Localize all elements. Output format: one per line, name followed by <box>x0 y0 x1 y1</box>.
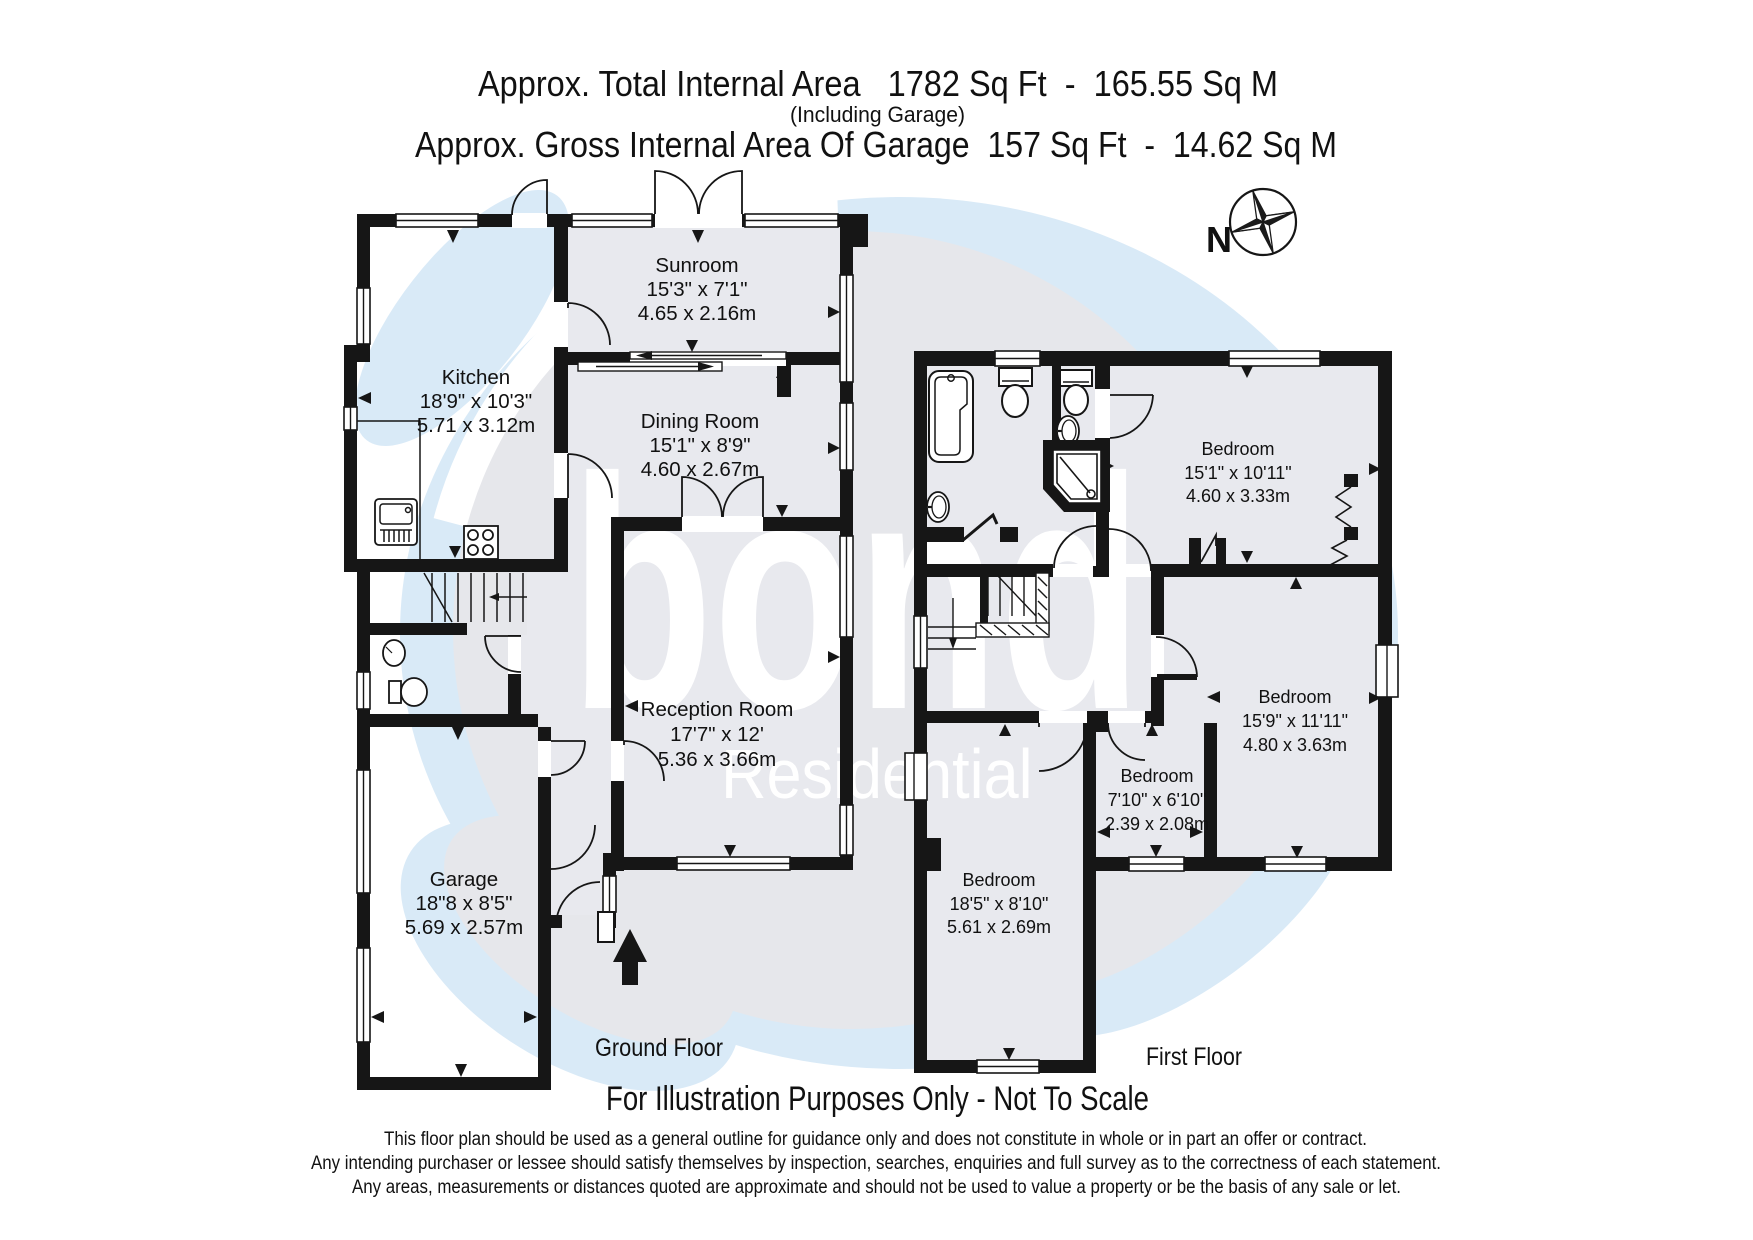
svg-text:Approx. Total Internal Area: Approx. Total Internal Area 1782 Sq Ft -… <box>478 63 1278 104</box>
svg-text:15'3" x 7'1": 15'3" x 7'1" <box>646 278 747 301</box>
svg-text:For Illustration Purposes Only: For Illustration Purposes Only - Not To … <box>606 1080 1149 1118</box>
svg-text:5.36 x 3.66m: 5.36 x 3.66m <box>658 748 777 771</box>
svg-text:First Floor: First Floor <box>1146 1043 1242 1071</box>
svg-text:18'9" x 10'3": 18'9" x 10'3" <box>420 390 532 413</box>
svg-text:4.60 x 2.67m: 4.60 x 2.67m <box>641 458 760 481</box>
svg-text:2.39 x 2.08m: 2.39 x 2.08m <box>1105 814 1209 834</box>
svg-text:Bedroom: Bedroom <box>1201 439 1274 459</box>
svg-text:Sunroom: Sunroom <box>655 254 738 277</box>
svg-text:18"8 x 8'5": 18"8 x 8'5" <box>415 892 512 915</box>
svg-text:15'1" x 8'9": 15'1" x 8'9" <box>649 434 750 457</box>
svg-text:4.80 x 3.63m: 4.80 x 3.63m <box>1243 735 1347 755</box>
svg-text:18'5" x 8'10": 18'5" x 8'10" <box>950 894 1049 914</box>
svg-text:Ground Floor: Ground Floor <box>595 1034 723 1062</box>
svg-text:Approx. Gross Internal Area Of: Approx. Gross Internal Area Of Garage 15… <box>415 124 1337 165</box>
svg-text:15'9" x 11'11": 15'9" x 11'11" <box>1242 711 1348 731</box>
svg-text:5.71 x 3.12m: 5.71 x 3.12m <box>417 414 536 437</box>
svg-text:Dining Room: Dining Room <box>641 410 760 433</box>
svg-text:Bedroom: Bedroom <box>962 870 1035 890</box>
svg-text:Any intending purchaser or les: Any intending purchaser or lessee should… <box>311 1153 1441 1174</box>
svg-text:4.60 x 3.33m: 4.60 x 3.33m <box>1186 486 1290 506</box>
svg-text:Garage: Garage <box>430 868 498 891</box>
svg-text:17'7" x 12': 17'7" x 12' <box>670 723 764 746</box>
svg-text:Reception Room: Reception Room <box>641 698 794 721</box>
svg-text:Any areas, measurements or dis: Any areas, measurements or distances quo… <box>352 1177 1401 1198</box>
svg-text:4.65 x 2.16m: 4.65 x 2.16m <box>638 302 757 325</box>
svg-text:Kitchen: Kitchen <box>442 366 510 389</box>
svg-text:N: N <box>1206 219 1232 260</box>
svg-text:5.61 x 2.69m: 5.61 x 2.69m <box>947 917 1051 937</box>
svg-text:This floor plan should be used: This floor plan should be used as a gene… <box>384 1129 1367 1150</box>
svg-text:7'10" x 6'10": 7'10" x 6'10" <box>1108 790 1207 810</box>
svg-text:Bedroom: Bedroom <box>1258 687 1331 707</box>
svg-text:5.69 x 2.57m: 5.69 x 2.57m <box>405 916 524 939</box>
svg-text:15'1" x 10'11": 15'1" x 10'11" <box>1184 463 1291 483</box>
svg-text:Bedroom: Bedroom <box>1120 766 1193 786</box>
